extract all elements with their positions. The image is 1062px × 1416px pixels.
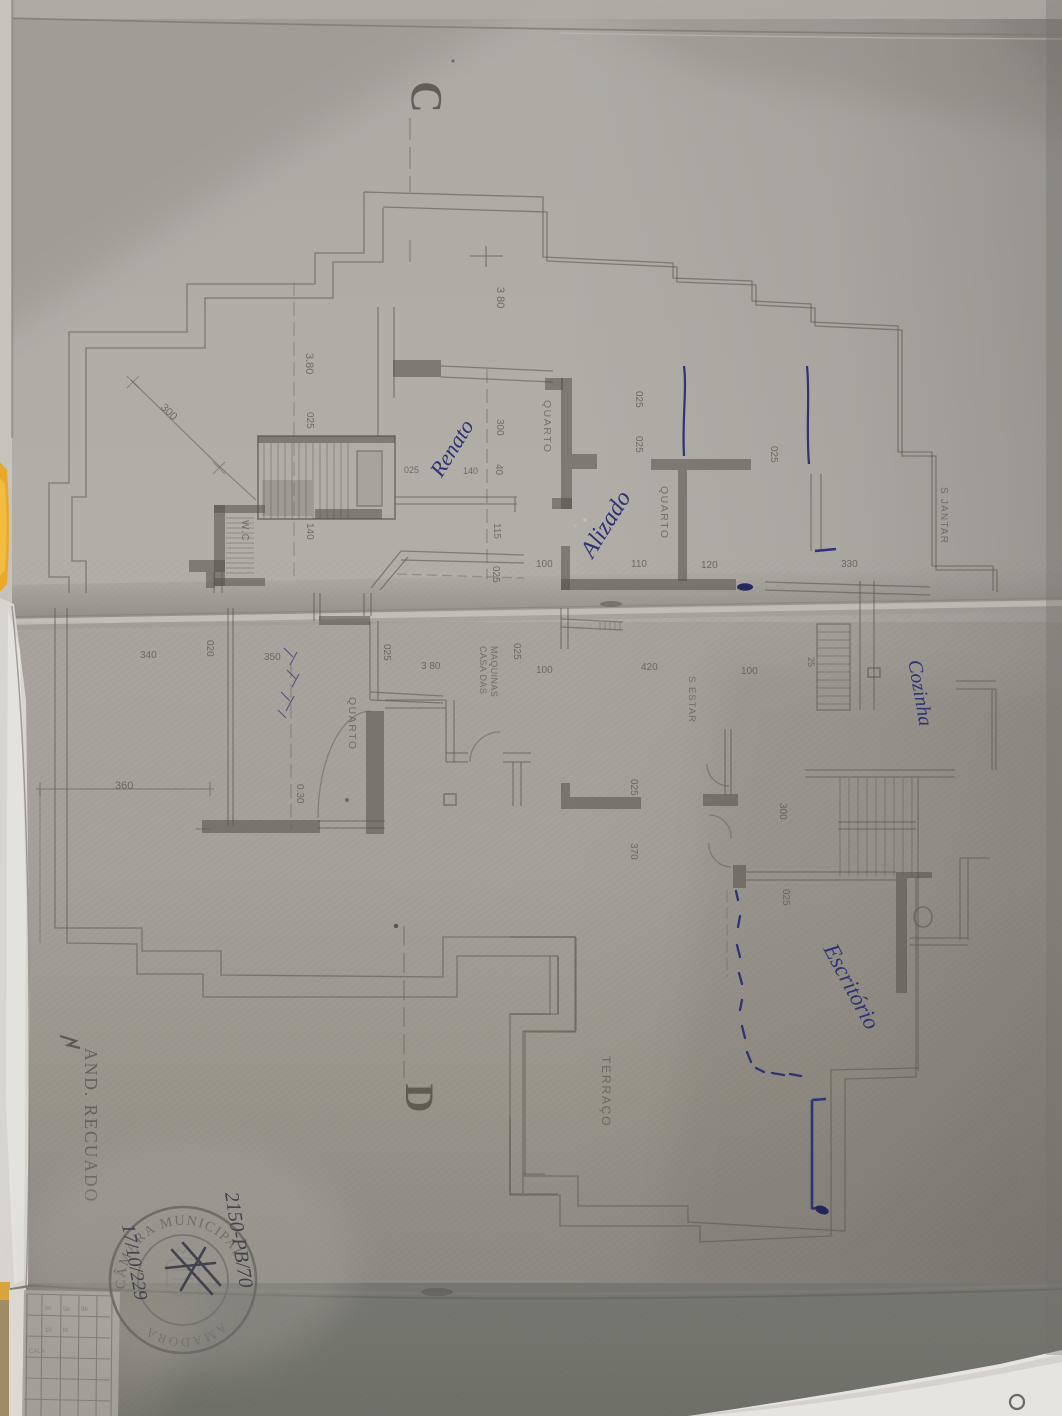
svg-text:C: C [402, 81, 451, 113]
svg-text:10: 10 [45, 1328, 52, 1334]
svg-text:S JANTAR: S JANTAR [938, 487, 949, 544]
svg-text:S ESTAR: S ESTAR [686, 676, 697, 723]
svg-text:QUARTO: QUARTO [541, 400, 553, 454]
svg-text:MAQUINAS: MAQUINAS [489, 646, 499, 697]
svg-text:100: 100 [536, 665, 553, 676]
svg-text:360: 360 [115, 780, 133, 792]
svg-text:025: 025 [780, 889, 791, 906]
svg-text:025: 025 [404, 465, 419, 475]
svg-text:140: 140 [304, 523, 315, 540]
svg-text:025: 025 [628, 779, 639, 796]
svg-text:025: 025 [511, 643, 522, 660]
svg-text:100: 100 [741, 666, 758, 677]
svg-text:QUARTO: QUARTO [346, 697, 358, 751]
svg-text:025: 025 [381, 644, 392, 661]
svg-text:025: 025 [768, 446, 779, 463]
svg-text:350: 350 [264, 652, 281, 663]
svg-text:110: 110 [631, 559, 647, 570]
svg-text:025: 025 [633, 436, 644, 453]
svg-text:CALA: CALA [29, 1349, 45, 1355]
svg-text:300: 300 [777, 803, 788, 820]
svg-text:020: 020 [204, 640, 215, 657]
svg-text:3 80: 3 80 [494, 287, 506, 308]
svg-text:25: 25 [806, 657, 816, 667]
svg-text:TERRAÇO: TERRAÇO [599, 1056, 613, 1127]
svg-text:3 80: 3 80 [421, 661, 441, 672]
svg-text:100: 100 [536, 559, 553, 570]
svg-text:370: 370 [628, 843, 639, 860]
svg-text:3.80: 3.80 [303, 353, 315, 374]
svg-text:025: 025 [490, 566, 501, 583]
svg-text:96: 96 [81, 1307, 88, 1313]
svg-text:140: 140 [463, 466, 478, 476]
svg-text:025: 025 [304, 412, 315, 429]
svg-text:340: 340 [140, 650, 157, 661]
svg-text:330: 330 [841, 559, 858, 570]
svg-text:115: 115 [491, 523, 502, 539]
svg-text:120: 120 [701, 560, 718, 571]
svg-text:ld: ld [63, 1328, 68, 1334]
svg-text:CASA DAS: CASA DAS [478, 646, 488, 694]
svg-text:QUARTO: QUARTO [658, 486, 670, 540]
svg-text:im: im [45, 1306, 51, 1312]
svg-text:025: 025 [633, 391, 644, 408]
svg-text:D: D [397, 1084, 442, 1113]
svg-text:W.C: W.C [239, 520, 250, 542]
svg-text:300: 300 [494, 419, 505, 436]
svg-text:0.30: 0.30 [294, 784, 305, 804]
svg-text:420: 420 [641, 662, 658, 673]
svg-text:40: 40 [493, 464, 504, 476]
svg-text:5b: 5b [63, 1307, 70, 1313]
